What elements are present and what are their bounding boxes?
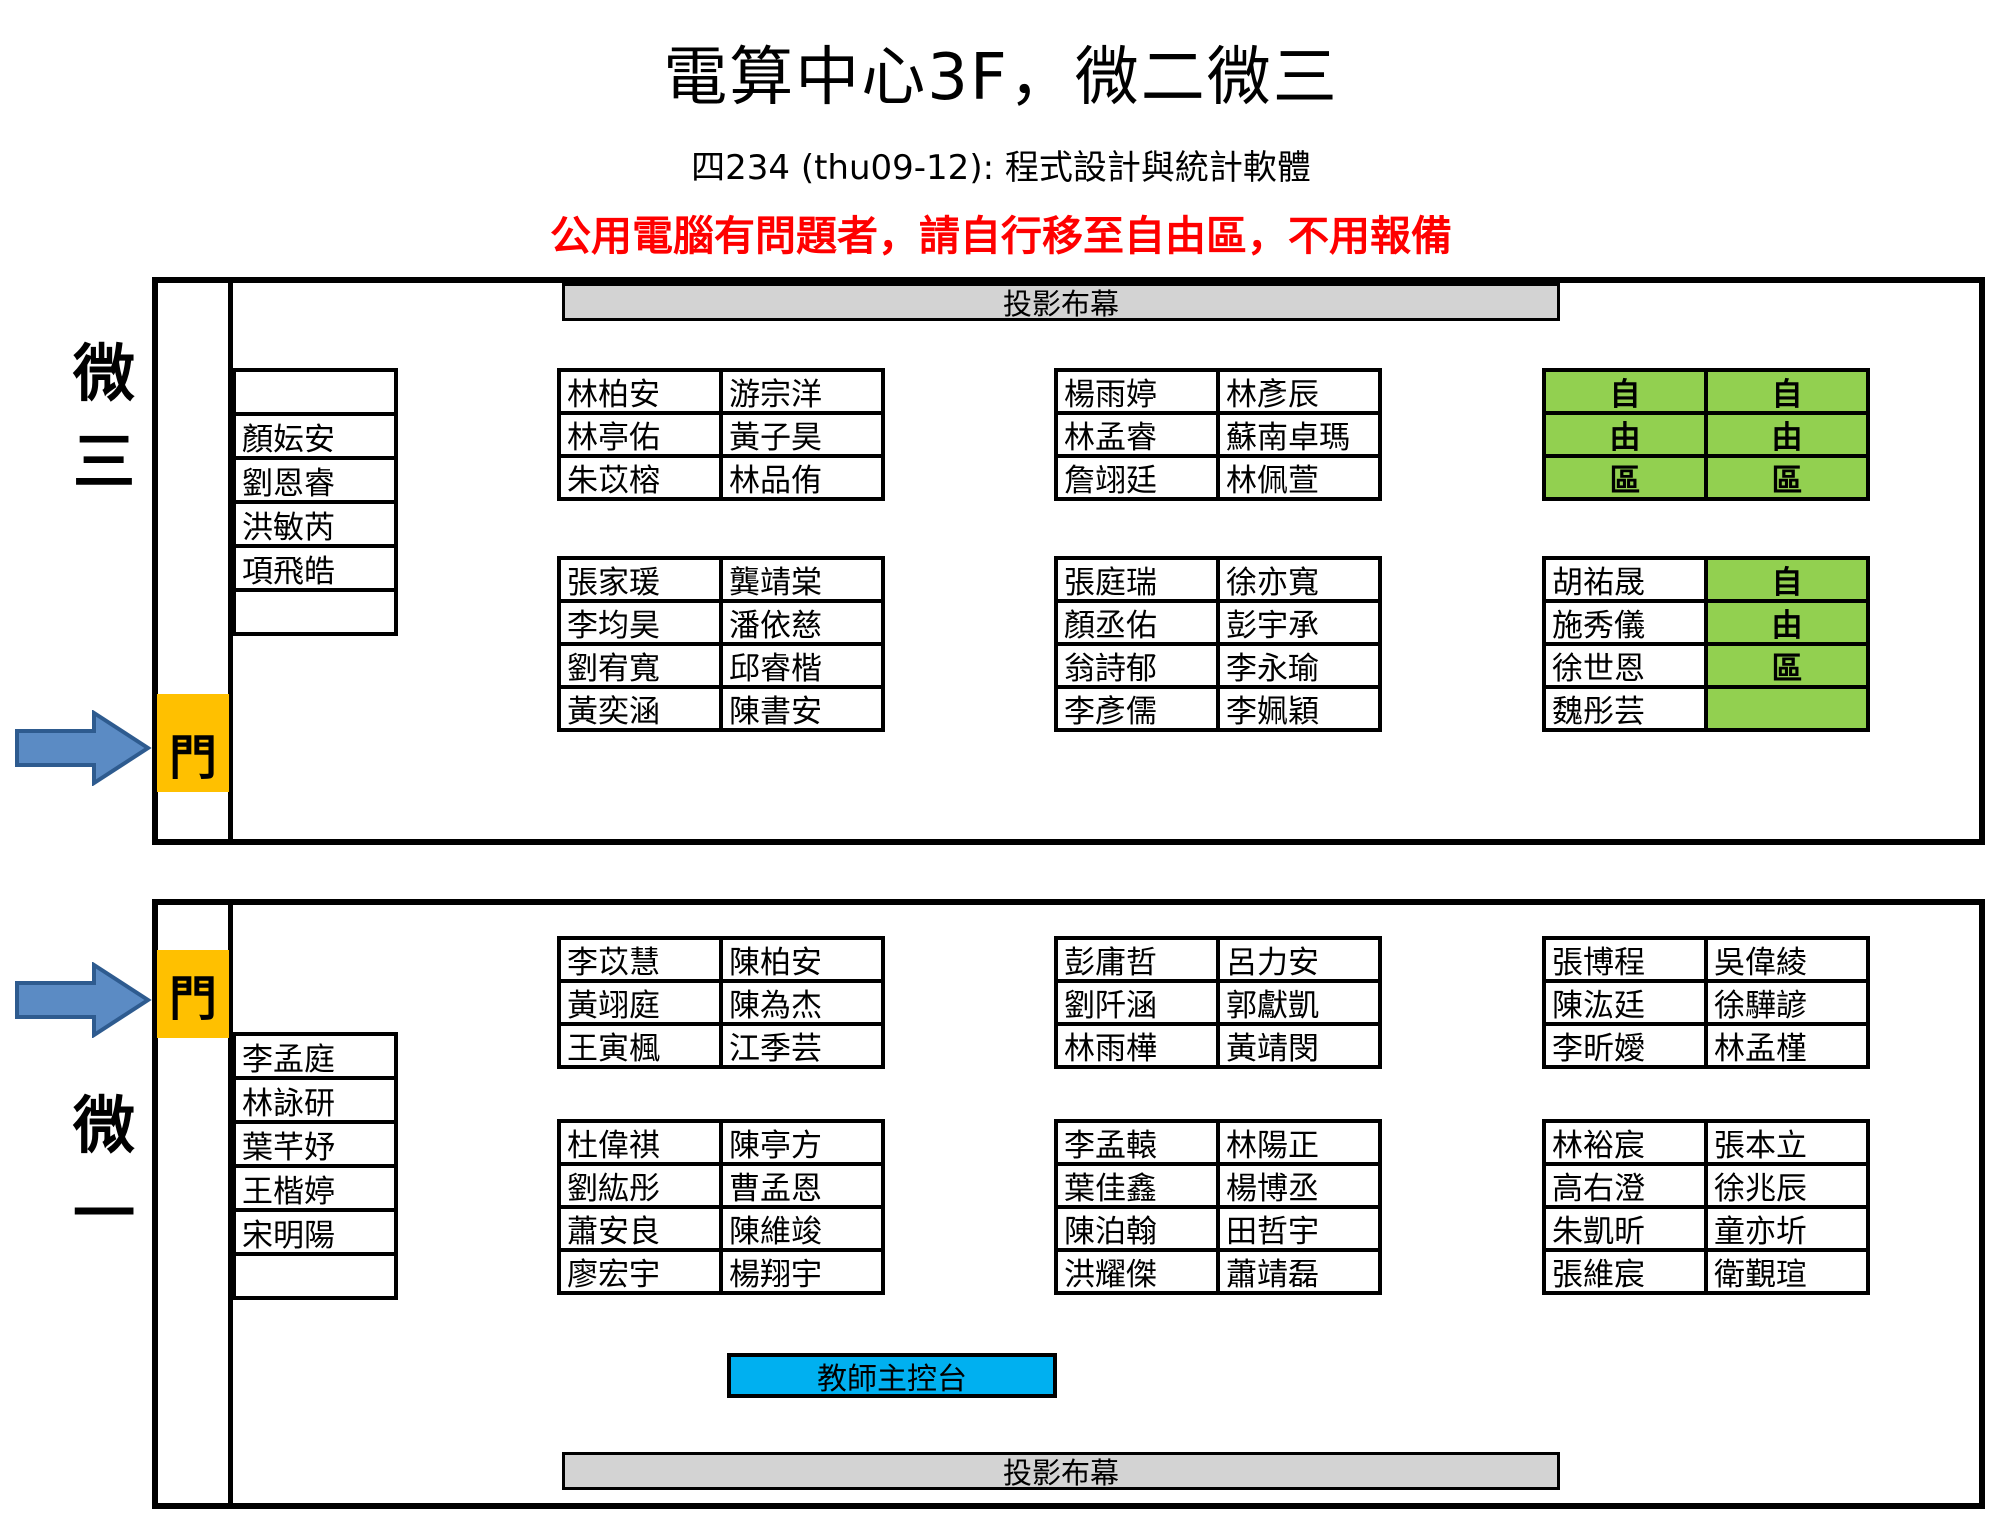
seat-row: 杜偉祺陳亭方: [557, 1119, 885, 1166]
seat-cell: 張本立: [1704, 1119, 1870, 1166]
seat-row: 洪耀傑蕭靖磊: [1054, 1248, 1382, 1295]
seat-cell: 張家瑗: [557, 556, 723, 603]
seat-cell: 徐世恩: [1542, 642, 1708, 689]
seat-cell: 龔靖棠: [719, 556, 885, 603]
seat-cell: 林佩萱: [1216, 454, 1382, 501]
seat-row: 區區: [1542, 454, 1870, 501]
seat-cell: 李昕嬡: [1542, 1022, 1708, 1069]
seat-cell: 郭獻凱: [1216, 979, 1382, 1026]
seat-cell: 蘇南卓瑪: [1216, 411, 1382, 458]
seat-cell: 蕭安良: [557, 1205, 723, 1252]
seat-row: 由由: [1542, 411, 1870, 458]
seat-cell: 徐亦寬: [1216, 556, 1382, 603]
seat-cell: 陳亭方: [719, 1119, 885, 1166]
seat-cell: 田哲宇: [1216, 1205, 1382, 1252]
seat-cell: 林彥辰: [1216, 368, 1382, 415]
seat-column-room_top: 顏妘安劉恩睿洪敏芮項飛皓: [232, 368, 398, 636]
seat-row: 詹翊廷林佩萱: [1054, 454, 1382, 501]
seat-cell: 林詠研: [232, 1076, 398, 1124]
seat-row: 高右澄徐兆辰: [1542, 1162, 1870, 1209]
seat-cell: 廖宏宇: [557, 1248, 723, 1295]
seat-row: 李彥儒李姵穎: [1054, 685, 1382, 732]
seat-cell: 劉紘彤: [557, 1162, 723, 1209]
projector-screen-label: 投影布幕: [1003, 281, 1119, 323]
seat-row: 徐世恩區: [1542, 642, 1870, 689]
seat-cell: 李姵穎: [1216, 685, 1382, 732]
free-area-cell: [1704, 685, 1870, 732]
seat-cell: 黃翊庭: [557, 979, 723, 1026]
seat-row: 林亭佑黃子昊: [557, 411, 885, 458]
seat-cell: 曹孟恩: [719, 1162, 885, 1209]
projector-screen-top: 投影布幕: [562, 283, 1560, 321]
room-label-wei3: 微三: [52, 330, 156, 506]
seat-cell: 顏丞佑: [1054, 599, 1220, 646]
seat-block-room_top-front_left: 林柏安游宗洋林亭佑黃子昊朱苡榕林品侑: [557, 368, 885, 501]
seat-row: 翁詩郁李永瑜: [1054, 642, 1382, 689]
seat-row: 黃翊庭陳為杰: [557, 979, 885, 1026]
door-label: 門: [169, 718, 217, 788]
seat-cell: 翁詩郁: [1054, 642, 1220, 689]
seat-row: 黃奕涵陳書安: [557, 685, 885, 732]
seat-cell: 呂力安: [1216, 936, 1382, 983]
seat-cell: [232, 368, 398, 416]
seat-block-room_bottom-back_right: 林裕宸張本立高右澄徐兆辰朱凱昕童亦圻張維宸衛覲瑄: [1542, 1119, 1870, 1295]
seat-cell: 林孟睿: [1054, 411, 1220, 458]
seat-cell: 項飛皓: [232, 544, 398, 592]
seat-block-room_bottom-back_left: 杜偉祺陳亭方劉紘彤曹孟恩蕭安良陳維竣廖宏宇楊翔宇: [557, 1119, 885, 1295]
free-area-cell: 自: [1542, 368, 1708, 415]
seat-cell: 林亭佑: [557, 411, 723, 458]
seat-cell: 張博程: [1542, 936, 1708, 983]
seat-row: 林裕宸張本立: [1542, 1119, 1870, 1166]
seat-cell: 高右澄: [1542, 1162, 1708, 1209]
seat-row: 宋明陽: [232, 1208, 398, 1256]
seat-row: 楊雨婷林彥辰: [1054, 368, 1382, 415]
seat-cell: 施秀儀: [1542, 599, 1708, 646]
door-bottom: 門: [157, 950, 229, 1038]
seat-block-room_top-back_left: 張家瑗龔靖棠李均昊潘依慈劉宥寬邱睿楷黃奕涵陳書安: [557, 556, 885, 732]
seat-cell: 王寅楓: [557, 1022, 723, 1069]
seat-cell: 吳偉綾: [1704, 936, 1870, 983]
seat-cell: 李彥儒: [1054, 685, 1220, 732]
seat-row: 顏丞佑彭宇承: [1054, 599, 1382, 646]
seat-cell: 劉恩睿: [232, 456, 398, 504]
seat-cell: 黃奕涵: [557, 685, 723, 732]
seat-cell: 林品侑: [719, 454, 885, 501]
seat-cell: [232, 588, 398, 636]
room-label-char: 微: [52, 1082, 156, 1170]
seat-row: 王寅楓江季芸: [557, 1022, 885, 1069]
seat-cell: 朱凱昕: [1542, 1205, 1708, 1252]
room-label-char: 三: [52, 418, 156, 506]
free-area-cell: 自: [1704, 368, 1870, 415]
projector-screen-label: 投影布幕: [1003, 1450, 1119, 1492]
entry-arrow-icon: [14, 962, 152, 1038]
entry-arrow-icon: [14, 710, 152, 786]
seat-cell: 李孟庭: [232, 1032, 398, 1080]
seat-cell: 陳書安: [719, 685, 885, 732]
seat-block-room_top-front_right: 自自由由區區: [1542, 368, 1870, 501]
seat-cell: 楊雨婷: [1054, 368, 1220, 415]
seat-row: 李孟轅林陽正: [1054, 1119, 1382, 1166]
seat-cell: 張維宸: [1542, 1248, 1708, 1295]
seat-row: 張庭瑞徐亦寬: [1054, 556, 1382, 603]
seat-cell: 彭庸哲: [1054, 936, 1220, 983]
seat-cell: 詹翊廷: [1054, 454, 1220, 501]
teacher-console: 教師主控台: [727, 1353, 1057, 1398]
seat-cell: 朱苡榕: [557, 454, 723, 501]
room-label-char: 微: [52, 330, 156, 418]
seat-row: 朱苡榕林品侑: [557, 454, 885, 501]
seat-row: 王楷婷: [232, 1164, 398, 1212]
seat-cell: 彭宇承: [1216, 599, 1382, 646]
seat-cell: 劉阡涵: [1054, 979, 1220, 1026]
seat-cell: 顏妘安: [232, 412, 398, 460]
seat-row: 劉阡涵郭獻凱: [1054, 979, 1382, 1026]
seat-cell: 衛覲瑄: [1704, 1248, 1870, 1295]
seat-cell: 洪耀傑: [1054, 1248, 1220, 1295]
room-label-wei1: 微一: [52, 1082, 156, 1258]
seat-row: 劉恩睿: [232, 456, 398, 504]
seat-row: 林詠研: [232, 1076, 398, 1124]
seat-cell: 徐兆辰: [1704, 1162, 1870, 1209]
free-area-cell: 由: [1704, 599, 1870, 646]
seat-cell: 林陽正: [1216, 1119, 1382, 1166]
seat-cell: 童亦圻: [1704, 1205, 1870, 1252]
seat-cell: 張庭瑞: [1054, 556, 1220, 603]
page-subtitle: 四234 (thu09-12): 程式設計與統計軟體: [0, 140, 2002, 189]
seat-cell: 黃子昊: [719, 411, 885, 458]
seat-cell: 陳柏安: [719, 936, 885, 983]
free-area-cell: 由: [1542, 411, 1708, 458]
seat-cell: 陳泊翰: [1054, 1205, 1220, 1252]
page-title: 電算中心3F，微二微三: [0, 26, 2002, 118]
seat-row: 葉佳鑫楊博丞: [1054, 1162, 1382, 1209]
seat-row: 李孟庭: [232, 1032, 398, 1080]
seat-row: [232, 1252, 398, 1300]
seat-row: 張維宸衛覲瑄: [1542, 1248, 1870, 1295]
seat-block-room_bottom-front_middle: 彭庸哲呂力安劉阡涵郭獻凱林雨樺黃靖閔: [1054, 936, 1382, 1069]
seat-block-room_top-back_middle: 張庭瑞徐亦寬顏丞佑彭宇承翁詩郁李永瑜李彥儒李姵穎: [1054, 556, 1382, 732]
seat-row: 廖宏宇楊翔宇: [557, 1248, 885, 1295]
seat-cell: 洪敏芮: [232, 500, 398, 548]
seat-cell: 徐驊諺: [1704, 979, 1870, 1026]
seat-cell: 劉宥寬: [557, 642, 723, 689]
seat-row: 陳泊翰田哲宇: [1054, 1205, 1382, 1252]
seat-cell: 陳為杰: [719, 979, 885, 1026]
seat-cell: 黃靖閔: [1216, 1022, 1382, 1069]
seat-row: 自自: [1542, 368, 1870, 415]
seat-block-room_top-back_right: 胡祐晟自施秀儀由徐世恩區魏彤芸: [1542, 556, 1870, 732]
seat-cell: 林柏安: [557, 368, 723, 415]
seat-cell: 魏彤芸: [1542, 685, 1708, 732]
seat-row: 張家瑗龔靖棠: [557, 556, 885, 603]
notice-text: 公用電腦有問題者，請自行移至自由區，不用報備: [0, 202, 2002, 262]
seat-column-room_bottom: 李孟庭林詠研葉芊妤王楷婷宋明陽: [232, 1032, 398, 1300]
seat-row: 張博程吳偉綾: [1542, 936, 1870, 983]
free-area-cell: 區: [1704, 642, 1870, 689]
seat-cell: 王楷婷: [232, 1164, 398, 1212]
seat-row: 胡祐晟自: [1542, 556, 1870, 603]
seat-block-room_bottom-front_left: 李苡慧陳柏安黃翊庭陳為杰王寅楓江季芸: [557, 936, 885, 1069]
seat-row: 林孟睿蘇南卓瑪: [1054, 411, 1382, 458]
seat-row: 魏彤芸: [1542, 685, 1870, 732]
seat-row: 李昕嬡林孟槿: [1542, 1022, 1870, 1069]
seat-cell: 陳汯廷: [1542, 979, 1708, 1026]
projector-screen-bottom: 投影布幕: [562, 1452, 1560, 1490]
seat-row: 陳汯廷徐驊諺: [1542, 979, 1870, 1026]
seat-row: 林雨樺黃靖閔: [1054, 1022, 1382, 1069]
door-top: 門: [157, 694, 229, 792]
seat-cell: 林孟槿: [1704, 1022, 1870, 1069]
seat-cell: 李永瑜: [1216, 642, 1382, 689]
seat-cell: 李苡慧: [557, 936, 723, 983]
seat-block-room_bottom-back_middle: 李孟轅林陽正葉佳鑫楊博丞陳泊翰田哲宇洪耀傑蕭靖磊: [1054, 1119, 1382, 1295]
seat-cell: 蕭靖磊: [1216, 1248, 1382, 1295]
seat-cell: 杜偉祺: [557, 1119, 723, 1166]
seat-cell: 林裕宸: [1542, 1119, 1708, 1166]
seat-cell: 林雨樺: [1054, 1022, 1220, 1069]
seat-row: 彭庸哲呂力安: [1054, 936, 1382, 983]
seat-row: [232, 368, 398, 416]
seat-block-room_top-front_middle: 楊雨婷林彥辰林孟睿蘇南卓瑪詹翊廷林佩萱: [1054, 368, 1382, 501]
seat-row: 顏妘安: [232, 412, 398, 460]
seat-cell: 李孟轅: [1054, 1119, 1220, 1166]
seat-cell: 江季芸: [719, 1022, 885, 1069]
free-area-cell: 由: [1704, 411, 1870, 458]
seat-block-room_bottom-front_right: 張博程吳偉綾陳汯廷徐驊諺李昕嬡林孟槿: [1542, 936, 1870, 1069]
seat-row: 葉芊妤: [232, 1120, 398, 1168]
seat-cell: 宋明陽: [232, 1208, 398, 1256]
seating-chart: 電算中心3F，微二微三 四234 (thu09-12): 程式設計與統計軟體 公…: [0, 0, 2002, 1531]
seat-row: 李均昊潘依慈: [557, 599, 885, 646]
seat-row: [232, 588, 398, 636]
seat-row: 李苡慧陳柏安: [557, 936, 885, 983]
free-area-cell: 區: [1704, 454, 1870, 501]
door-label: 門: [169, 959, 217, 1029]
seat-row: 林柏安游宗洋: [557, 368, 885, 415]
seat-cell: 楊翔宇: [719, 1248, 885, 1295]
seat-cell: [232, 1252, 398, 1300]
seat-cell: 潘依慈: [719, 599, 885, 646]
seat-row: 蕭安良陳維竣: [557, 1205, 885, 1252]
free-area-cell: 自: [1704, 556, 1870, 603]
teacher-console-label: 教師主控台: [817, 1354, 967, 1398]
seat-cell: 胡祐晟: [1542, 556, 1708, 603]
seat-row: 劉紘彤曹孟恩: [557, 1162, 885, 1209]
seat-cell: 楊博丞: [1216, 1162, 1382, 1209]
seat-cell: 葉芊妤: [232, 1120, 398, 1168]
room-label-char: 一: [52, 1170, 156, 1258]
free-area-cell: 區: [1542, 454, 1708, 501]
seat-row: 朱凱昕童亦圻: [1542, 1205, 1870, 1252]
seat-row: 洪敏芮: [232, 500, 398, 548]
seat-cell: 游宗洋: [719, 368, 885, 415]
seat-row: 施秀儀由: [1542, 599, 1870, 646]
seat-cell: 邱睿楷: [719, 642, 885, 689]
seat-row: 劉宥寬邱睿楷: [557, 642, 885, 689]
seat-cell: 陳維竣: [719, 1205, 885, 1252]
seat-cell: 李均昊: [557, 599, 723, 646]
seat-cell: 葉佳鑫: [1054, 1162, 1220, 1209]
seat-row: 項飛皓: [232, 544, 398, 592]
